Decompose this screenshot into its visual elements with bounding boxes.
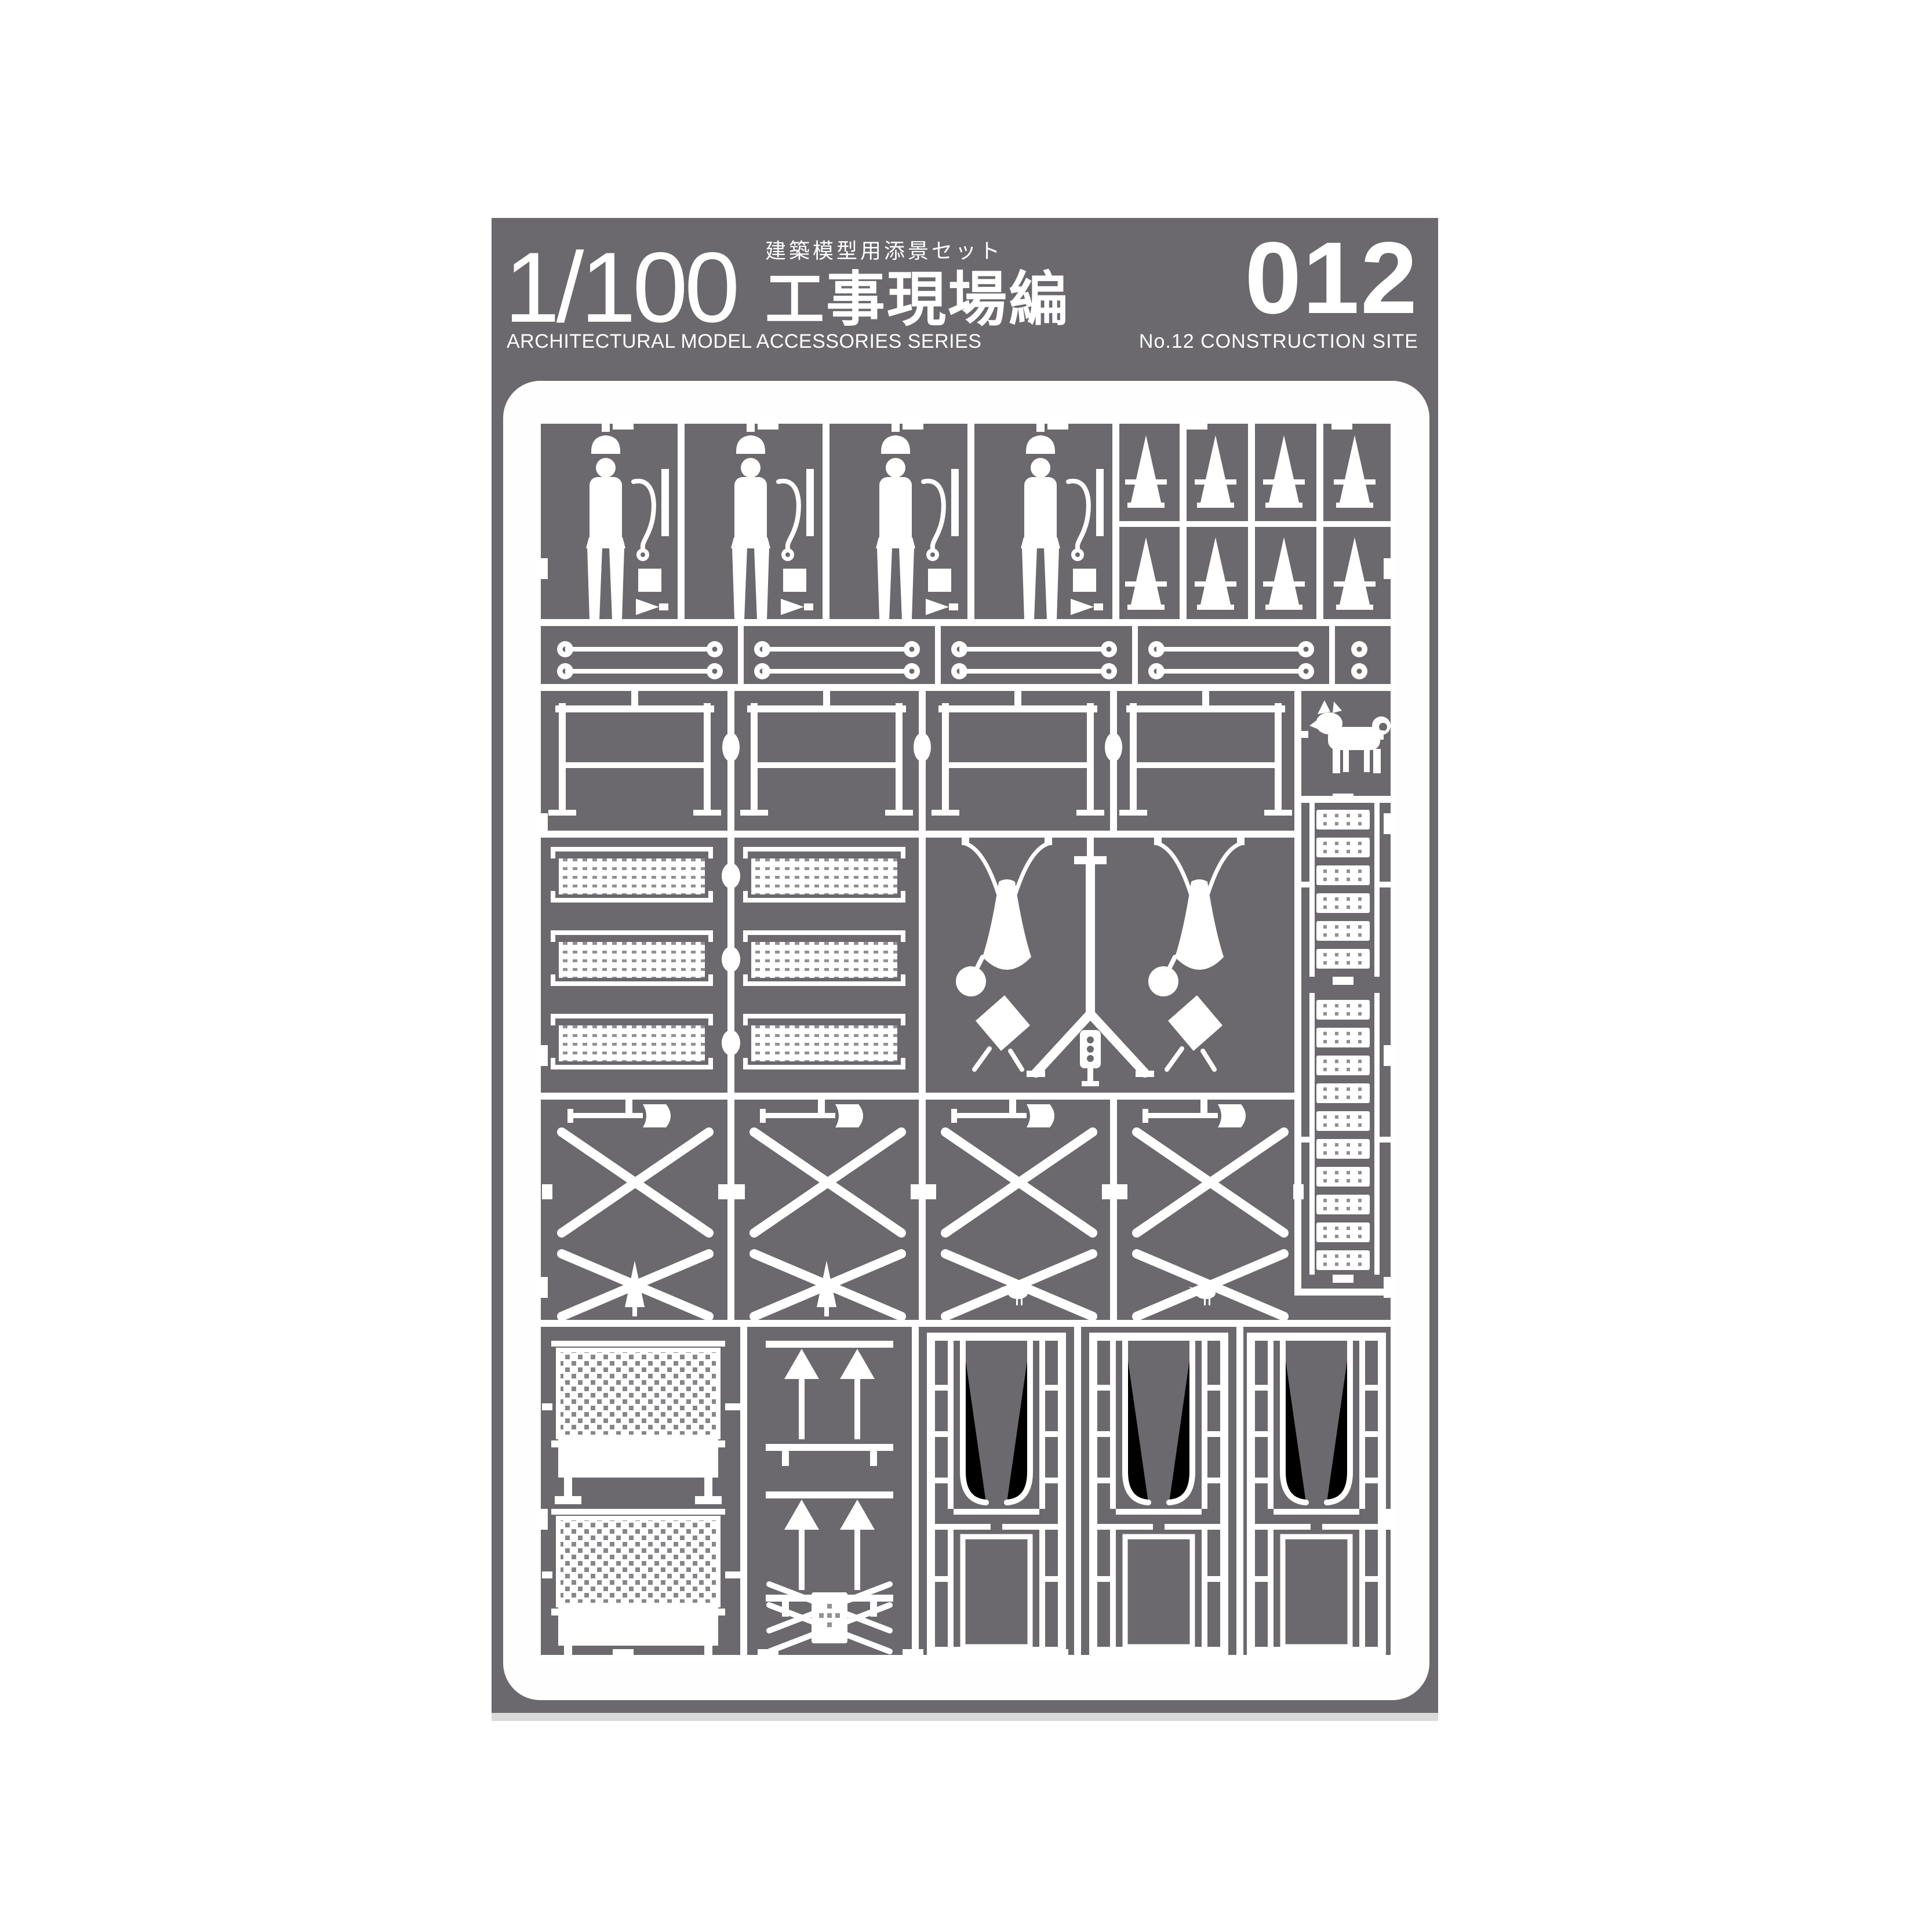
- subtitle-english: No.12 CONSTRUCTION SITE: [1139, 330, 1418, 353]
- sprue-panel: [503, 381, 1429, 1700]
- series-name-english: ARCHITECTURAL MODEL ACCESSORIES SERIES: [507, 330, 981, 353]
- sprue-sheet: [536, 418, 1395, 1661]
- product-card: 1/100 建築模型用添景セット 工事現場編 ARCHITECTURAL MOD…: [492, 218, 1438, 1713]
- product-number: 012: [1245, 227, 1418, 329]
- vertical-ladder-icon: [1298, 794, 1391, 1283]
- scale-title: 1/100: [504, 238, 736, 337]
- package-cover-page: { "header": { "scale": "1/100", "series_…: [0, 0, 1932, 1932]
- series-name-japanese: 建築模型用添景セット: [765, 234, 1069, 264]
- edition-name-japanese: 工事現場編: [765, 269, 1069, 331]
- card-bottom-shadow: [492, 1713, 1438, 1721]
- japanese-title-block: 建築模型用添景セット 工事現場編: [765, 234, 1069, 331]
